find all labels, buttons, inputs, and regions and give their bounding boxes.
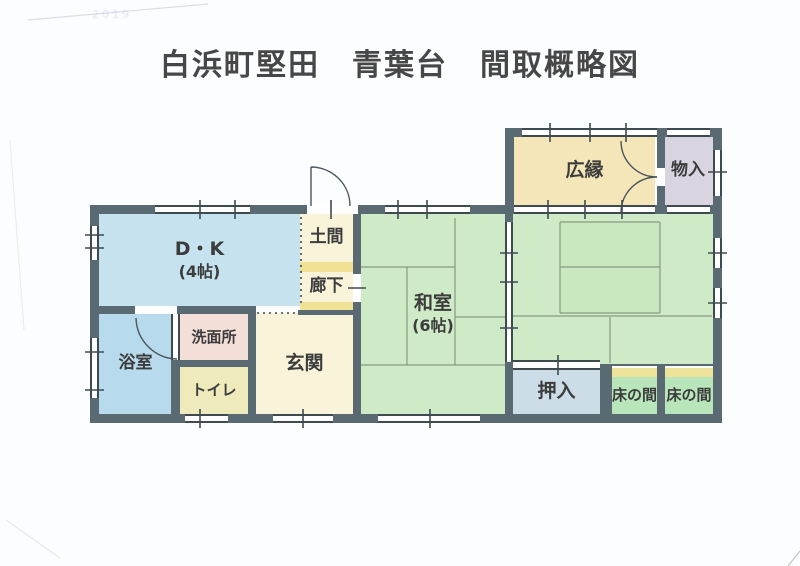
wall: [600, 364, 722, 366]
wall: [713, 318, 722, 423]
wall: [713, 268, 722, 288]
wall: [177, 306, 256, 314]
room-genkan: 玄関: [256, 313, 353, 414]
room-tokonoma-1: 床の間: [612, 377, 657, 414]
room-label: 廊下: [310, 276, 344, 297]
room-oshiire: 押入: [513, 370, 600, 414]
scan-artifact: [6, 520, 60, 558]
wall: [353, 302, 361, 414]
window: [385, 205, 470, 214]
room-label: 床の間: [612, 386, 657, 405]
sliding-door: [171, 314, 180, 360]
wall: [90, 414, 185, 423]
room-label: 玄関: [285, 352, 323, 376]
wall: [713, 205, 722, 238]
window: [90, 338, 99, 398]
door-opening: [353, 274, 361, 302]
room-dk: D・K (4帖): [99, 214, 300, 306]
tatami-core: [560, 222, 660, 313]
room-label: 和室: [414, 292, 452, 316]
door-opening: [657, 168, 665, 186]
wall: [228, 414, 273, 423]
window: [155, 205, 250, 214]
wall: [505, 137, 514, 214]
window: [522, 128, 657, 137]
fusuma-sliding-door: [505, 222, 513, 362]
scan-artifact: [10, 140, 24, 330]
wall: [248, 313, 256, 414]
wall: [250, 205, 307, 214]
floor-plan: D・K (4帖) 土間 廊下 玄関 浴室 洗面所 トイレ 和室 (6帖) 和室: [0, 0, 800, 566]
room-label: 物入: [671, 160, 705, 181]
room-yokushitsu: 浴室: [99, 314, 172, 414]
wall: [90, 260, 99, 338]
scan-artifact: [788, 551, 800, 566]
room-doma: 土間: [300, 214, 353, 262]
wall: [180, 360, 248, 367]
room-hiroen: 広縁: [514, 137, 655, 205]
window: [713, 238, 722, 268]
wall: [90, 306, 135, 314]
window: [713, 150, 722, 196]
wall: [505, 362, 513, 414]
room-tokonoma-2: 床の間: [665, 377, 713, 414]
room-label: D・K: [175, 238, 225, 262]
oshiire-sliding-door: [513, 360, 600, 370]
door-swing-doma: [311, 167, 350, 206]
window: [273, 414, 333, 423]
floor-band: [300, 262, 353, 272]
room-size: (6帖): [412, 316, 454, 336]
window: [185, 414, 228, 423]
wall: [480, 414, 722, 423]
window: [378, 414, 480, 423]
door-opening: [307, 205, 358, 214]
scan-artifact: [28, 4, 208, 20]
tokonoma-band: [612, 368, 657, 377]
room-label: 床の間: [666, 386, 711, 405]
wall: [90, 205, 155, 214]
room-monoire: 物入: [663, 137, 713, 205]
wall: [90, 205, 99, 226]
wall: [171, 360, 180, 414]
room-washitsu-center: 和室 (6帖): [361, 214, 505, 414]
room-senmenjo: 洗面所: [180, 314, 248, 360]
room-size: (4帖): [179, 262, 221, 282]
window: [713, 288, 722, 318]
room-label: 洗面所: [191, 328, 236, 347]
scanned-floorplan-page: 2019 白浜町堅田 青葉台 間取概略図 D・K (4帖) 土間 廊下 玄関 浴…: [0, 0, 800, 566]
room-label: 浴室: [119, 353, 153, 374]
room-toire: トイレ: [180, 367, 248, 414]
wall: [298, 310, 360, 315]
window: [667, 205, 710, 214]
wall: [710, 128, 722, 137]
tokonoma-band: [665, 368, 713, 377]
room-label: 土間: [310, 227, 344, 248]
wall: [600, 366, 612, 414]
wall: [713, 137, 722, 150]
shoji-sliding-door: [514, 205, 655, 214]
window: [667, 128, 710, 137]
wall: [657, 366, 665, 414]
wall: [505, 205, 513, 222]
wall: [353, 205, 361, 274]
room-label: 押入: [537, 380, 575, 404]
window: [90, 226, 99, 260]
room-label: 広縁: [565, 159, 603, 183]
wall: [657, 128, 667, 137]
room-label: トイレ: [191, 381, 236, 400]
wall: [505, 128, 522, 137]
wall: [358, 205, 385, 214]
room-rouka: 廊下: [300, 272, 353, 302]
wall: [713, 196, 722, 205]
door-opening: [135, 306, 171, 314]
wall: [333, 414, 378, 423]
